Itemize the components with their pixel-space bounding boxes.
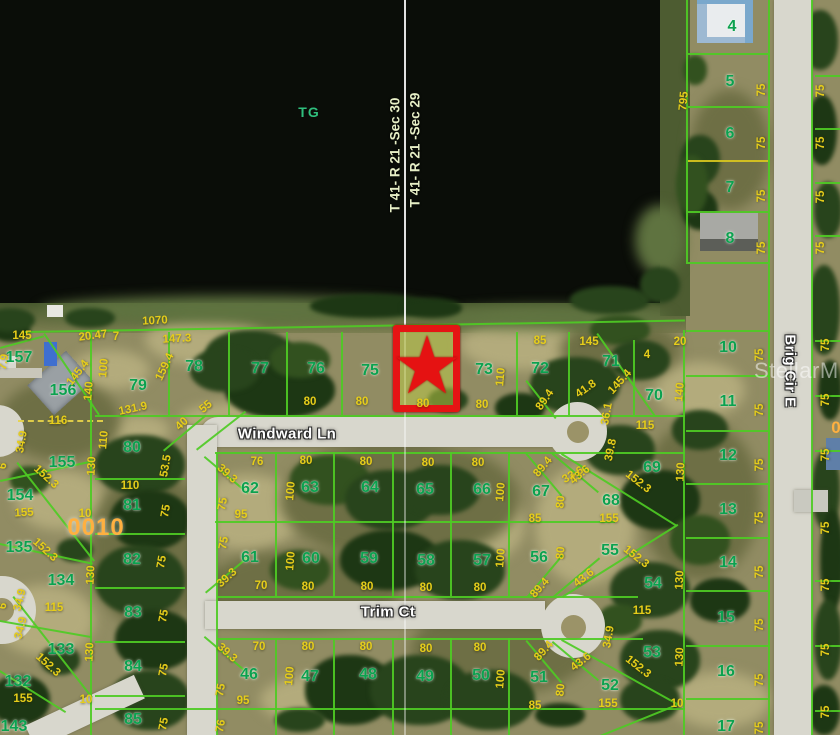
dimension-label: 75 (155, 555, 169, 570)
lot-number-label: 65 (416, 481, 434, 499)
dimension-label: 76 (214, 719, 228, 734)
terrain-patch (635, 205, 685, 275)
dimension-label: 75 (820, 579, 832, 592)
lot-number-label: 79 (129, 377, 147, 395)
parcel-boundary-line (688, 53, 768, 55)
lot-number-label: 58 (417, 552, 435, 570)
tree-blob (570, 286, 650, 314)
lot-number-label: 133 (48, 641, 75, 659)
lot-number-label: 64 (361, 479, 379, 497)
tree-blob (275, 708, 325, 732)
lot-number-label: 48 (359, 666, 377, 684)
dimension-label: 110 (97, 430, 111, 450)
lot-number-label: 69 (643, 459, 661, 477)
shed-shoreline (47, 305, 63, 317)
dimension-label: 159.4 (153, 351, 176, 382)
dimension-label: 70 (253, 641, 266, 653)
parcel-boundary-line (686, 698, 770, 700)
street-name-label: Trim Ct (361, 604, 415, 621)
dimension-label: 75 (820, 339, 832, 352)
parcel-boundary-line (392, 452, 394, 596)
dimension-label: 75 (216, 497, 230, 512)
lot-number-label: 85 (124, 711, 142, 729)
dimension-label: 75 (815, 137, 827, 150)
dimension-label: 80 (474, 582, 487, 594)
parcel-boundary-line (95, 478, 185, 480)
dimension-label: 100 (494, 548, 508, 568)
dimension-label: 75 (754, 512, 766, 525)
block-number-label: 0010 (67, 514, 124, 542)
parcel-boundary-line (688, 106, 768, 108)
dimension-label: 75 (157, 663, 171, 678)
dimension-label: 795 (677, 91, 691, 111)
lot-number-label: 59 (360, 550, 378, 568)
lot-number-label: 17 (717, 718, 735, 735)
lot-number-label: 80 (123, 439, 141, 457)
dimension-label: 6 (0, 462, 9, 470)
lot-number-label: 11 (720, 393, 737, 411)
section-label-sec29: T 41- R 21 -Sec 29 (408, 93, 423, 208)
dimension-label: 80 (417, 398, 430, 410)
lot-number-label: 50 (472, 667, 490, 685)
lot-number-label: 53 (643, 644, 661, 662)
dimension-label: 80 (554, 683, 567, 697)
lot-number-label: 6 (726, 125, 735, 143)
dimension-label: 145 (12, 330, 31, 342)
dimension-label: 100 (284, 551, 298, 571)
dimension-label: 75 (754, 566, 766, 579)
parcel-boundary-line (450, 452, 452, 596)
lot-number-label: 63 (301, 479, 319, 497)
tree-blob (270, 550, 330, 590)
parcel-boundary-line (686, 0, 688, 264)
lot-number-label: 14 (719, 554, 737, 572)
dimension-label: 75 (756, 84, 768, 97)
dimension-label: 10 (671, 698, 684, 710)
lot-number-label: 72 (531, 360, 549, 378)
lot-number-label: 12 (719, 447, 737, 465)
parcel-boundary-line (333, 452, 335, 596)
lot-number-label: 13 (719, 501, 737, 519)
water-label-tg: TG (298, 104, 319, 120)
dimension-label: 75 (159, 504, 173, 519)
parcel-boundary-line (275, 638, 277, 708)
parcel-boundary-line (95, 587, 185, 589)
section-label-sec30: T 41- R 21 -Sec 30 (388, 98, 403, 213)
dimension-label: 110 (121, 480, 140, 492)
dimension-label: 80 (304, 396, 317, 408)
tree-blob (640, 267, 680, 303)
lot-number-label: 83 (124, 604, 142, 622)
parcel-boundary-line (688, 160, 768, 162)
dimension-label: 147.3 (162, 332, 191, 345)
dimension-label: 85 (529, 513, 542, 525)
parcel-boundary-line (286, 332, 288, 415)
lot-number-label: 68 (602, 492, 620, 510)
dimension-label: 110 (494, 367, 508, 387)
dimension-label: 75 (756, 190, 768, 203)
dimension-label: 80 (422, 457, 435, 469)
dimension-label: 76 (251, 456, 264, 468)
tree-blob (814, 600, 840, 680)
lot-number-label: 70 (645, 387, 663, 405)
parcel-boundary-line (688, 262, 768, 264)
dimension-label: 89.4 (531, 455, 555, 480)
parcel-boundary-line (392, 638, 394, 708)
lot-number-label: 46 (240, 666, 258, 684)
lot-number-label: 52 (601, 677, 619, 695)
dimension-label: 34.9 (601, 625, 617, 649)
dimension-label: 80 (554, 495, 567, 509)
dimension-label: 155 (13, 693, 32, 705)
dimension-label: 130 (674, 647, 687, 667)
dimension-label: 80 (472, 457, 485, 469)
parcel-boundary-line (333, 638, 335, 708)
lot-number-label: 84 (124, 658, 142, 676)
dimension-label: 75 (754, 674, 766, 687)
dimension-label: 20 (674, 336, 687, 348)
parcel-boundary-line (508, 452, 510, 596)
dimension-label: 75 (217, 536, 231, 551)
parcel-boundary-line (815, 235, 840, 237)
parcel-boundary-line (688, 211, 768, 213)
dimension-label: 85 (529, 700, 542, 712)
lot-number-label: 143 (1, 718, 28, 735)
dimension-label: 4 (644, 349, 650, 361)
lot-number-label: 67 (532, 483, 550, 501)
parcel-boundary-line (815, 128, 840, 130)
lot-number-label: 60 (302, 550, 320, 568)
dimension-label: 75 (754, 722, 766, 735)
lot-number-label: 135 (6, 539, 33, 557)
lot-number-label: 155 (49, 454, 76, 472)
parcel-boundary-line (815, 182, 840, 184)
dimension-label: 10 (80, 694, 93, 706)
dimension-label: 80 (360, 641, 373, 653)
road-windward-vertical (187, 425, 217, 735)
dimension-label: 75 (820, 522, 832, 535)
dimension-label: 155 (14, 507, 34, 520)
parcel-boundary-line (568, 332, 570, 415)
lot-number-label: 54 (644, 575, 662, 593)
lot-number-label: 5 (726, 73, 735, 91)
parcel-boundary-line (218, 638, 643, 640)
tree-blob (65, 308, 115, 328)
dimension-label: 130 (674, 570, 687, 590)
dimension-label: 85 (534, 335, 547, 347)
lot-number-label: 77 (251, 360, 269, 378)
culdesac-trim-island (561, 615, 586, 640)
dimension-label: 115 (45, 602, 64, 614)
dimension-label: 80 (302, 641, 315, 653)
dimension-label: 75 (756, 137, 768, 150)
lot-number-label: 82 (123, 551, 141, 569)
lot-number-label: 49 (416, 668, 434, 686)
dimension-label: 116 (49, 415, 68, 427)
tree-blob (676, 155, 708, 215)
dimension-label: 75 (820, 644, 832, 657)
dimension-label: 75 (214, 683, 228, 698)
lot-number-label: 62 (241, 480, 259, 498)
dimension-label: 145 (579, 336, 598, 348)
dimension-label: 75 (157, 717, 171, 732)
dimension-label: 20.47 (78, 328, 108, 343)
parcel-boundary-line (450, 638, 452, 708)
lot-number-label: 47 (301, 668, 319, 686)
parcel-boundary-line (633, 340, 635, 415)
dimension-label: 75 (820, 449, 832, 462)
dimension-label: 75 (815, 85, 827, 98)
dimension-label: 140 (673, 382, 687, 402)
parcel-boundary-line (686, 645, 770, 647)
parcel-boundary-line (686, 330, 770, 332)
dimension-label: 75 (754, 404, 766, 417)
dimension-label: 95 (235, 509, 248, 521)
lot-number-label: 134 (48, 572, 75, 590)
parcel-boundary-line (275, 708, 277, 735)
dimension-label: 80 (300, 455, 313, 467)
dimension-label: 75 (815, 242, 827, 255)
dimension-label: 130 (85, 565, 98, 585)
parcel-boundary-line (516, 332, 518, 415)
dimension-label: 100 (494, 482, 508, 502)
dimension-label: 140 (82, 381, 96, 401)
lot-number-label: 10 (719, 339, 737, 357)
subject-star-icon: ★ (391, 326, 463, 406)
lot-number-label: 75 (361, 362, 379, 380)
lot-number-label: 55 (601, 542, 619, 560)
dimension-label: 75 (754, 619, 766, 632)
lake-water (0, 0, 668, 312)
lot-number-label: 78 (185, 358, 203, 376)
dimension-label: 100 (97, 358, 111, 378)
dimension-label: 75 (820, 394, 832, 407)
lot-number-label: 4 (728, 18, 737, 36)
parcel-boundary-line (686, 590, 770, 592)
lot-number-label: 81 (123, 497, 141, 515)
section-line (404, 0, 406, 332)
parcel-boundary-line (95, 695, 185, 697)
dimension-label: 115 (636, 420, 655, 432)
dimension-label: 80 (360, 456, 373, 468)
dimension-label: 75 (820, 706, 832, 719)
dimension-label: 80 (476, 399, 489, 411)
lot-number-label: 51 (530, 669, 548, 687)
parcel-boundary-line (341, 332, 343, 415)
dimension-label: 130 (84, 642, 97, 662)
culdesac-windward-island (567, 421, 589, 443)
tree-blob (400, 465, 480, 515)
tree-blob (535, 703, 585, 727)
lot-number-label: 73 (475, 361, 493, 379)
dimension-label: 155 (598, 698, 617, 710)
parcel-boundary-line (218, 596, 638, 598)
parcel-boundary-line (815, 75, 840, 77)
dimension-label: 7 (113, 331, 119, 343)
parcel-boundary-line (95, 641, 185, 643)
lot-number-label: 57 (473, 552, 491, 570)
parcel-boundary-line (686, 483, 770, 485)
dimension-label: 75 (754, 459, 766, 472)
parcel-boundary-line (95, 708, 685, 710)
tree-blob (402, 298, 462, 318)
dimension-label: 75 (815, 191, 827, 204)
dimension-label: 75 (157, 609, 171, 624)
edge-block-label: 0 (831, 418, 840, 438)
dimension-label: 100 (494, 669, 508, 689)
parcel-boundary-line (508, 708, 510, 735)
plat-map-canvas[interactable]: ★ TG T 41- R 21 -Sec 30 T 41- R 21 -Sec … (0, 0, 840, 735)
lot-number-label: 154 (7, 487, 34, 505)
lot-number-label: 56 (530, 549, 548, 567)
dimension-label: 100 (284, 481, 298, 501)
dimension-label: 70 (255, 580, 268, 592)
dimension-label: 80 (356, 396, 369, 408)
parcel-boundary-line (450, 708, 452, 735)
lot-number-label: 71 (602, 353, 620, 371)
parcel-boundary-line (392, 708, 394, 735)
dimension-label: 75 (756, 242, 768, 255)
dimension-label: 1070 (142, 314, 168, 327)
dimension-label: 6 (0, 602, 9, 610)
dimension-label: 100 (283, 666, 297, 686)
lot-number-label: 66 (473, 481, 491, 499)
lot-number-label: 132 (5, 673, 32, 691)
lot-number-label: 16 (717, 663, 735, 681)
house-lot-4 (697, 0, 753, 43)
lot-number-label: 15 (717, 609, 735, 627)
dimension-label: 95 (237, 695, 250, 707)
dimension-label: 36.1 (599, 402, 615, 426)
lot-number-label: 61 (241, 549, 259, 567)
parcel-boundary-line (275, 452, 277, 596)
dimension-label: 80 (420, 582, 433, 594)
parcel-boundary-line (333, 708, 335, 735)
dimension-label: 155 (599, 513, 618, 525)
dimension-label: 115 (633, 605, 652, 617)
lot-number-label: 76 (307, 360, 325, 378)
dimension-label: 80 (474, 642, 487, 654)
lot-number-label: 7 (726, 179, 735, 197)
parcel-boundary-line (686, 430, 770, 432)
stellar-mls-watermark: StellarMLS (754, 358, 840, 384)
dimension-label: 80 (361, 581, 374, 593)
dimension-label: 80 (554, 546, 567, 560)
dimension-label: 130 (675, 462, 688, 482)
lot-number-label: 8 (726, 230, 735, 248)
dimension-label: 130 (86, 456, 99, 476)
parcel-boundary-line (508, 638, 510, 708)
dimension-label: 80 (420, 643, 433, 655)
dimension-label: 80 (302, 581, 315, 593)
street-name-label: Windward Ln (238, 426, 336, 443)
parcel-boundary-line (228, 332, 230, 415)
parcel-boundary-line (686, 537, 770, 539)
